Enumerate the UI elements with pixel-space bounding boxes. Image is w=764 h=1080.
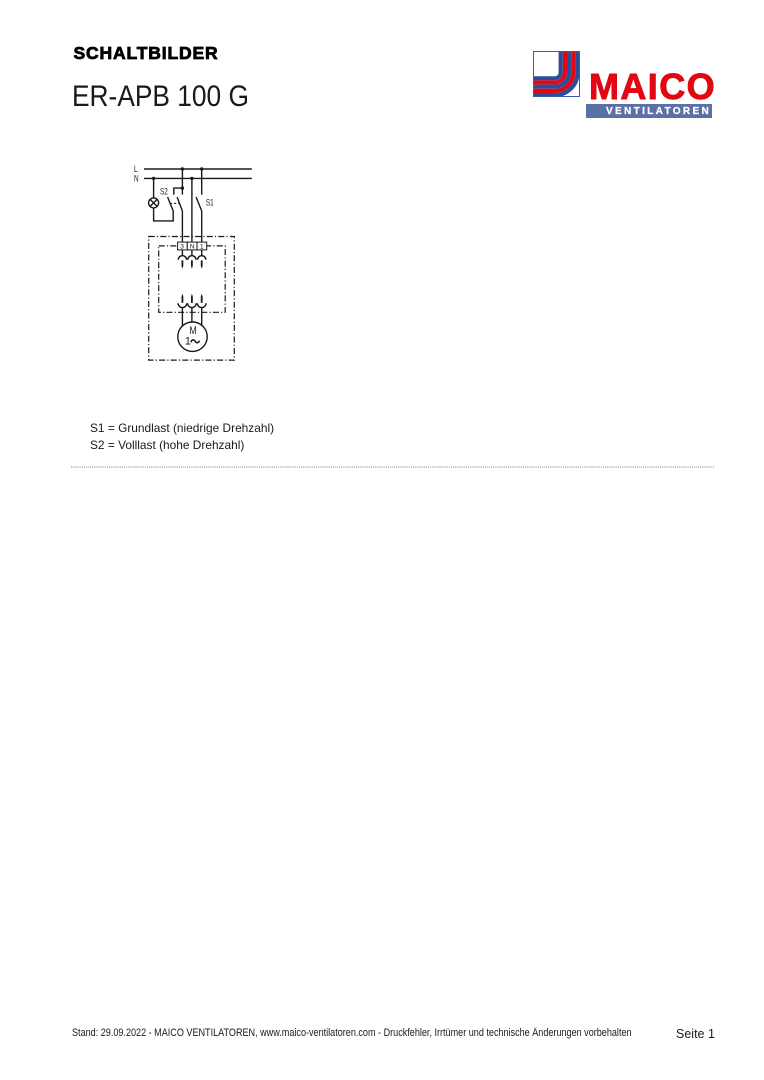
svg-text:1: 1 (185, 336, 191, 348)
svg-text:L: L (134, 164, 138, 174)
svg-text:N: N (190, 244, 195, 251)
svg-text:S1: S1 (206, 198, 214, 208)
svg-text:N: N (134, 174, 139, 184)
svg-text:1: 1 (200, 244, 204, 251)
svg-text:S2: S2 (160, 187, 168, 197)
svg-text:3: 3 (180, 244, 184, 251)
